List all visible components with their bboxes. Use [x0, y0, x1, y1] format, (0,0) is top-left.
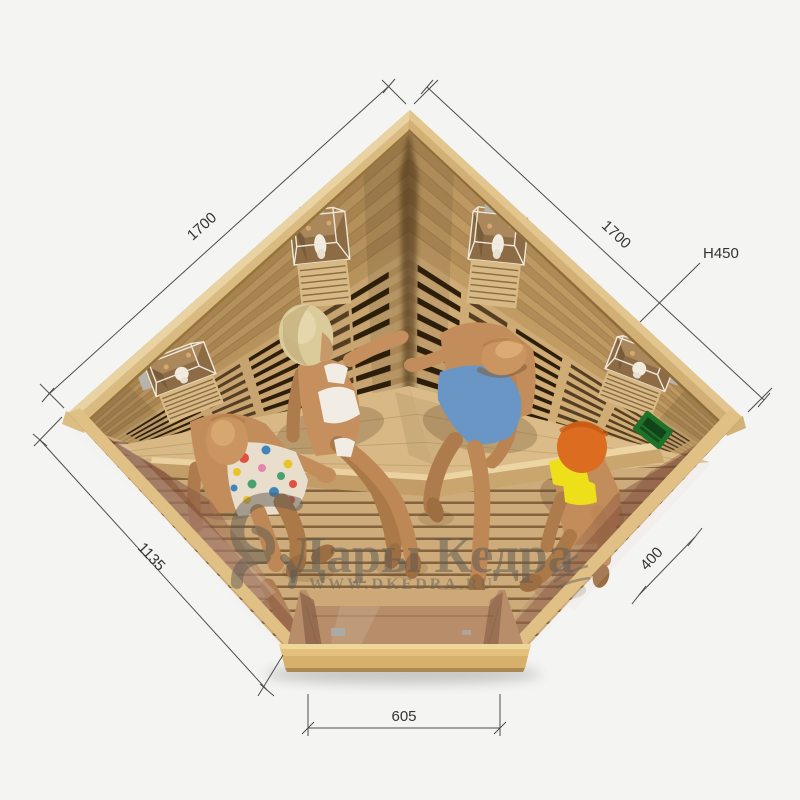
svg-text:WWW.DKEDRA.RU: WWW.DKEDRA.RU: [309, 576, 495, 593]
svg-text:605: 605: [391, 708, 416, 725]
svg-text:H450: H450: [703, 245, 739, 262]
